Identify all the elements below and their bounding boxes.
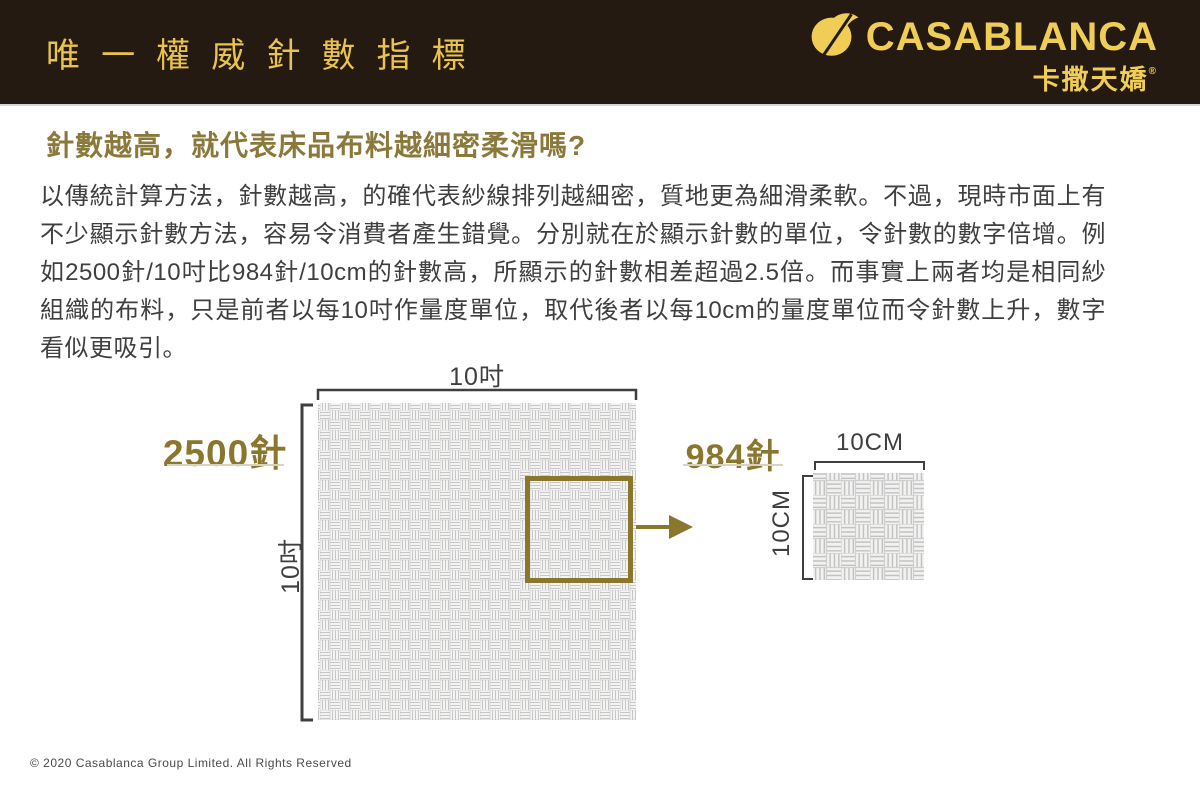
- small-swatch-height-label: 10CM: [768, 468, 794, 578]
- brand-name: CASABLANCA: [866, 17, 1158, 57]
- large-swatch-stitch-count: 2500針: [155, 423, 295, 477]
- paragraph-line: 不少顯示針數方法，容易令消費者產生錯覺。分別就在於顯示針數的單位，令針數的數字倍…: [40, 216, 1106, 254]
- small-swatch-width-label: 10CM: [815, 429, 925, 457]
- large-swatch-width-label: 10吋: [318, 357, 636, 393]
- section-heading: 針數越高，就代表床品布料越細密柔滑嗎?: [46, 124, 1146, 164]
- header-bar: 唯一權威針數指標 CASABLANCA 卡撒天嬌®: [0, 0, 1200, 106]
- stitch-comparison-diagram: [0, 350, 1200, 750]
- small-swatch-height-bracket: [803, 476, 813, 579]
- paragraph-line: 以傳統計算方法，針數越高，的確代表紗線排列越細密，質地更為細滑柔軟。不過，現時市…: [40, 178, 1106, 216]
- large-stitch-underline: [167, 464, 284, 466]
- paragraph-line: 組織的布料，只是前者以每10吋作量度單位，取代後者以每10cm的量度單位而令針數…: [40, 292, 1106, 330]
- brand-logo: CASABLANCA 卡撒天嬌®: [809, 11, 1158, 94]
- paragraph-line: 如2500針/10吋比984針/10cm的針數高，所顯示的針數相差超過2.5倍。…: [40, 254, 1106, 292]
- small-swatch-width-bracket: [815, 462, 924, 470]
- large-fabric-swatch: [318, 403, 636, 720]
- large-swatch-height-label: 10吋: [271, 516, 297, 616]
- comparison-arrow-head: [669, 515, 693, 539]
- registered-mark: ®: [1149, 66, 1158, 77]
- small-stitch-underline: [683, 464, 783, 466]
- brand-name-chinese: 卡撒天嬌®: [1033, 67, 1158, 94]
- small-fabric-swatch: [813, 473, 924, 580]
- slide: 唯一權威針數指標 CASABLANCA 卡撒天嬌® 針數越高，就代表床品布料越細…: [0, 0, 1200, 800]
- page-title: 唯一權威針數指標: [46, 28, 487, 77]
- casablanca-logo-icon: [809, 11, 861, 64]
- copyright-notice: © 2020 Casablanca Group Limited. All Rig…: [30, 756, 352, 770]
- body-paragraph: 以傳統計算方法，針數越高，的確代表紗線排列越細密，質地更為細滑柔軟。不過，現時市…: [40, 178, 1106, 368]
